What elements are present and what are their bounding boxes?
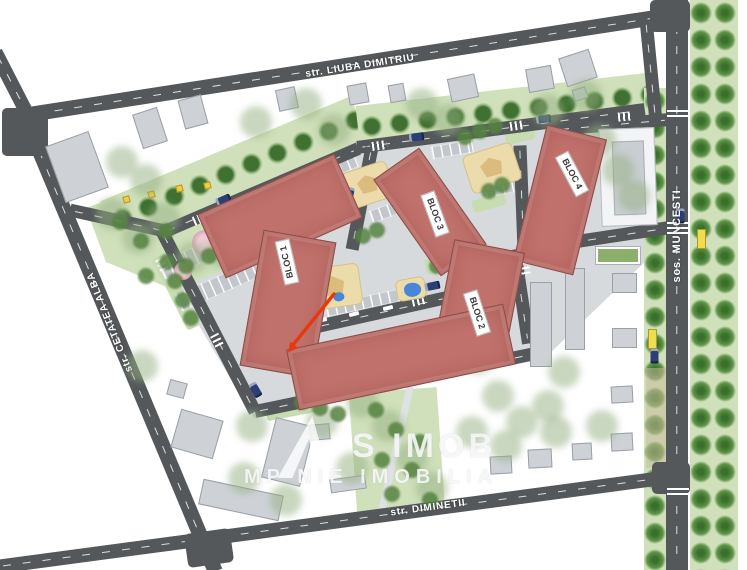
pool bbox=[333, 292, 345, 302]
existing-building bbox=[166, 379, 188, 399]
road-junction bbox=[650, 0, 690, 32]
existing-building bbox=[611, 385, 634, 403]
crosswalk bbox=[667, 488, 689, 498]
existing-building bbox=[346, 82, 369, 105]
existing-building bbox=[528, 448, 553, 468]
existing-building bbox=[572, 442, 593, 460]
pool bbox=[403, 281, 422, 298]
existing-building bbox=[611, 432, 634, 451]
street-label-muncesti: sos. MUNCESTI bbox=[671, 190, 683, 283]
car bbox=[651, 349, 659, 364]
existing-building bbox=[132, 107, 168, 149]
existing-building-roof bbox=[612, 140, 647, 215]
road-junction bbox=[2, 108, 48, 156]
existing-building-large bbox=[598, 127, 657, 227]
existing-building bbox=[178, 94, 209, 129]
street-label-cetatea-alba: str. CETATEA ALBA bbox=[85, 270, 135, 373]
crosswalk bbox=[667, 110, 689, 120]
watermark-line-2: MP NIE IMOBILIA bbox=[244, 466, 498, 489]
road-junction bbox=[184, 528, 234, 568]
existing-building bbox=[388, 83, 407, 104]
existing-building bbox=[612, 273, 637, 293]
existing-building bbox=[275, 86, 299, 112]
existing-building bbox=[565, 268, 585, 350]
tree-row-muncesti-east bbox=[690, 0, 738, 570]
sports-field bbox=[596, 247, 640, 264]
roadside-verge bbox=[646, 368, 666, 468]
watermark-line-1: S IMOB bbox=[352, 427, 497, 466]
crosswalk bbox=[618, 111, 633, 121]
pink-tree bbox=[174, 262, 192, 280]
existing-building bbox=[612, 328, 637, 348]
site-plan-map: BLOC 1 BLOC 2 BLOC 3 BLOC 4 str. LIUBA D… bbox=[0, 0, 747, 570]
bus-shelter bbox=[697, 229, 706, 249]
bus-shelter bbox=[648, 329, 657, 349]
existing-building bbox=[170, 409, 223, 460]
existing-building bbox=[525, 65, 555, 93]
existing-building bbox=[530, 282, 552, 367]
